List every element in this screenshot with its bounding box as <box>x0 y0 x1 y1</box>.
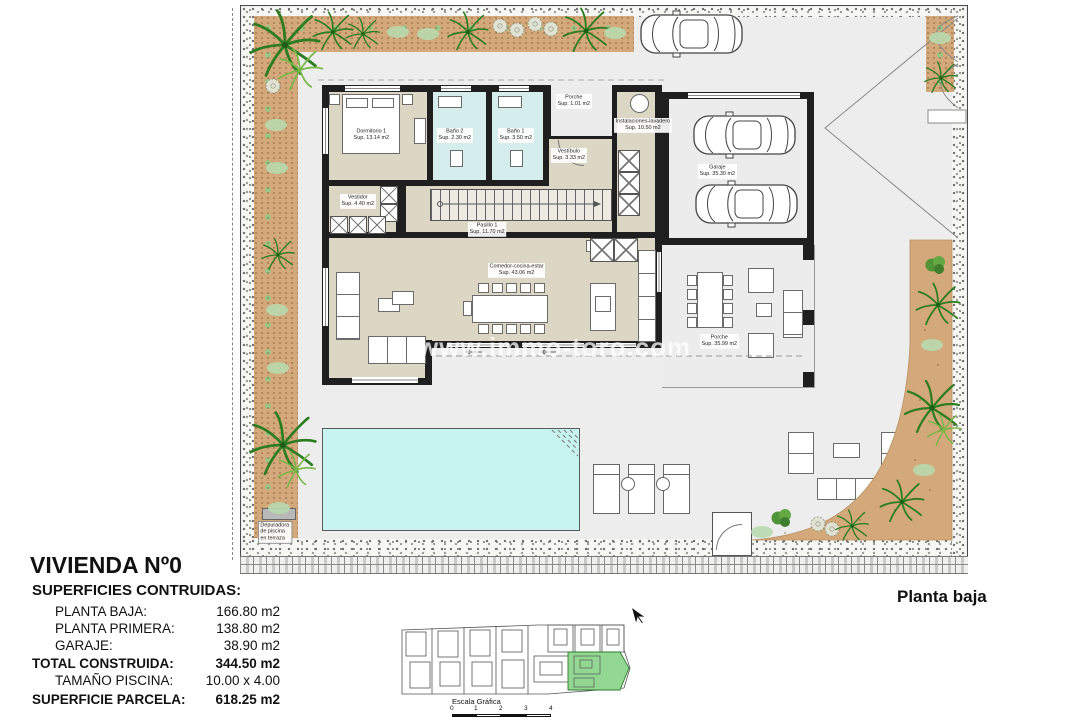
terrace-chair <box>687 289 697 300</box>
terrace-column <box>803 310 814 325</box>
bedroom-desk <box>414 118 426 144</box>
window <box>345 86 400 91</box>
dining-end-chair <box>463 301 472 316</box>
terrace-chair <box>687 275 697 286</box>
mini-site-plan <box>398 616 634 700</box>
wall-bath-bath <box>486 85 492 181</box>
garage-door <box>688 93 800 98</box>
bath1-vanity <box>498 96 522 108</box>
room-label-vestibulo: VestíbuloSup. 3.33 m2 <box>551 148 587 163</box>
wardrobe-box <box>368 216 386 234</box>
terrace-chair <box>723 275 733 286</box>
terrace-chair <box>723 303 733 314</box>
terrace-sofa <box>783 290 803 338</box>
scale-segment <box>526 714 551 717</box>
garden-bed-top <box>254 16 634 52</box>
room-label-pasillo1: Pasillo 1Sup. 11.70 m2 <box>468 222 506 237</box>
utility-closet <box>618 194 640 216</box>
garden-bed-left <box>254 16 298 538</box>
sidewalk <box>240 556 968 574</box>
sliding-window <box>352 377 418 383</box>
entry-porch-floor <box>549 85 616 138</box>
scale-bar: Escala Gráfica 0 1 2 3 4 <box>450 697 560 719</box>
wall-bed-bottom <box>322 180 549 186</box>
room-label-depuradora: Depuradora de piscina en terraza <box>258 521 292 544</box>
terrace-chair <box>687 303 697 314</box>
scale-tick: 0 <box>450 705 454 712</box>
wall-bed-bath <box>427 85 433 186</box>
room-label-porche-terraza: PorcheSup. 35.99 m2 <box>700 334 739 349</box>
terrace-door <box>657 252 661 292</box>
wardrobe-box <box>330 216 348 234</box>
gravel-strip-bottom <box>242 539 966 556</box>
room-label-dormitorio1: Dormitorio 1Sup. 13.14 m2 <box>352 128 391 143</box>
floor-plan-sheet: Dormitorio 1Sup. 13.14 m2 Baño 2Sup. 2.3… <box>0 0 1080 720</box>
scale-segment <box>452 714 476 717</box>
terrace-side-table <box>756 303 772 317</box>
sun-lounger <box>593 464 620 514</box>
scale-tick: 1 <box>474 705 478 712</box>
room-label-lavadero: Instalaciones-lavaderoSup. 10.50 m2 <box>614 118 672 133</box>
scale-tick: 3 <box>524 705 528 712</box>
bath2-vanity <box>438 96 462 108</box>
plan-name: Planta baja <box>897 587 987 607</box>
pool-equipment-box <box>262 508 296 520</box>
scale-segment <box>476 714 501 717</box>
coffee-table <box>392 291 414 305</box>
terrace-chair <box>723 289 733 300</box>
sofa <box>336 272 360 340</box>
dining-chair <box>520 283 531 293</box>
garden-armchair <box>788 432 814 474</box>
dining-chair <box>492 283 503 293</box>
window <box>323 268 328 326</box>
terrace-armchair <box>748 268 774 293</box>
stairs <box>430 189 612 221</box>
bath2-toilet <box>450 150 463 167</box>
dining-chair <box>534 283 545 293</box>
room-label-porche-entrada: PorcheSup. 1.01 m2 <box>556 94 592 109</box>
dining-table <box>472 295 548 323</box>
room-label-vestidor: VestidorSup. 4.40 m2 <box>340 194 376 209</box>
wardrobe-box <box>380 186 398 204</box>
utility-closet <box>618 172 640 194</box>
terrace-column <box>803 372 814 387</box>
room-label-bano2: Baño 2Sup. 2.30 m2 <box>437 128 473 143</box>
window <box>499 86 529 91</box>
surfaces-subtitle: SUPERFICIES CONTRUIDAS: <box>32 582 241 599</box>
washer-circle <box>630 94 649 113</box>
cooktop <box>595 296 611 312</box>
terrace-chair <box>687 317 697 328</box>
gravel-strip-right <box>952 7 966 556</box>
garage-floor <box>669 99 807 238</box>
sheet-title: VIVIENDA Nº0 <box>30 552 182 579</box>
scale-tick: 2 <box>499 705 503 712</box>
terrace-chair <box>723 317 733 328</box>
scale-segment <box>501 714 526 717</box>
terrace-table <box>697 272 723 328</box>
room-label-bano1: Baño 1Sup. 3.50 m2 <box>498 128 534 143</box>
dining-chair <box>506 283 517 293</box>
bath1-toilet <box>510 150 523 167</box>
window <box>323 108 328 154</box>
wardrobe-box <box>349 216 367 234</box>
round-side-table <box>656 477 670 491</box>
garden-bed-top-right <box>926 16 954 92</box>
pillow <box>372 98 394 108</box>
pillow <box>346 98 368 108</box>
garden-coffee-table <box>833 443 860 458</box>
title-block: VIVIENDA Nº0 SUPERFICIES CONTRUIDAS: PLA… <box>30 552 310 712</box>
wall-vestibule-utility <box>612 85 617 245</box>
pantry-closet <box>614 238 638 262</box>
window <box>441 86 471 91</box>
room-label-comedor: Comedor-cocina-estarSup. 43.06 m2 <box>488 263 545 278</box>
kitchen-tall-units <box>638 250 656 342</box>
scale-tick: 4 <box>549 705 553 712</box>
utility-closet <box>618 150 640 172</box>
nightstand <box>329 94 340 105</box>
garden-armchair <box>881 432 905 473</box>
terrace-armchair <box>748 333 774 358</box>
terrace-column <box>803 245 814 260</box>
round-side-table <box>621 477 635 491</box>
gravel-strip-left <box>242 7 254 556</box>
pantry-closet <box>590 238 614 262</box>
pool <box>322 428 580 531</box>
watermark: www.immo-toro.com <box>418 332 691 363</box>
nightstand <box>402 94 413 105</box>
property-boundary-line <box>232 8 233 560</box>
dining-chair <box>478 283 489 293</box>
garden-sofa <box>817 478 880 500</box>
room-label-garaje: GarajeSup. 35.30 m2 <box>698 164 737 179</box>
wall-porch-vestibule <box>549 136 612 139</box>
